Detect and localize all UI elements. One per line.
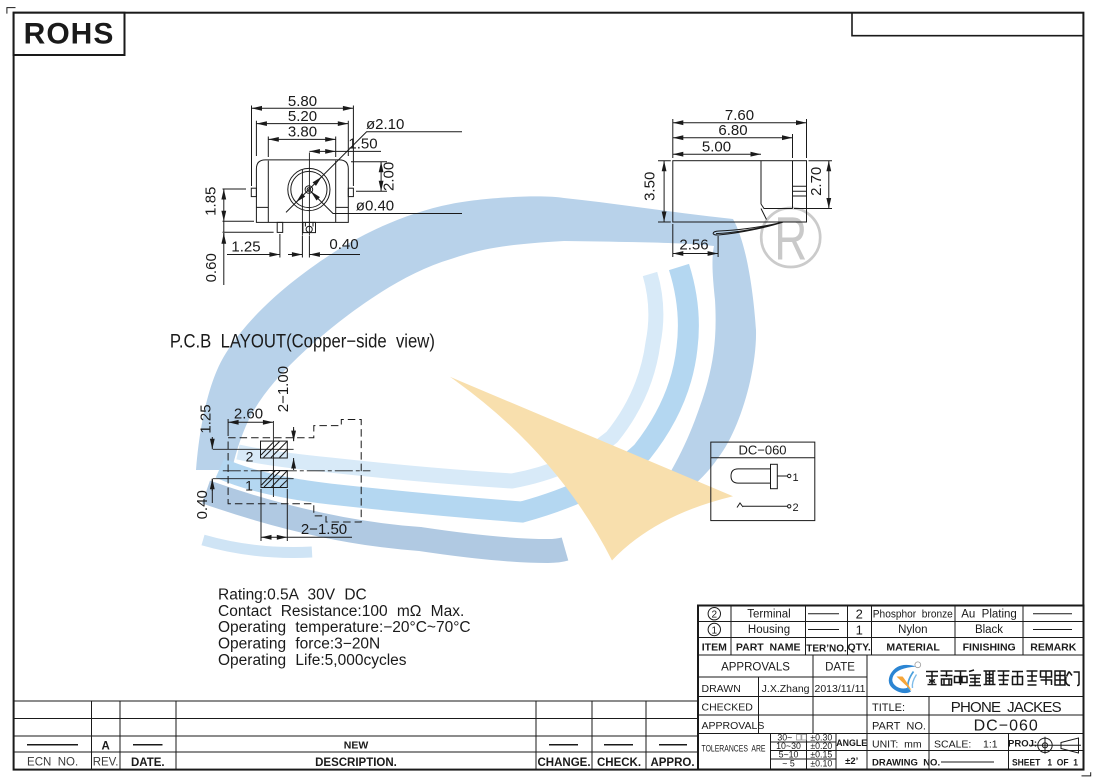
svg-text:Housing: Housing (748, 624, 790, 636)
svg-text:UNIT: mm: UNIT: mm (872, 738, 922, 750)
svg-text:DRAWING NO.: DRAWING NO. (872, 757, 940, 768)
svg-text:Contact Resistance:100 mΩ Max.: Contact Resistance:100 mΩ Max. (218, 603, 464, 620)
svg-text:PHONE JACKES: PHONE JACKES (951, 699, 1062, 716)
svg-text:REV.: REV. (93, 757, 119, 769)
svg-text:SCALE: 1:1: SCALE: 1:1 (934, 738, 998, 750)
svg-text:2: 2 (712, 610, 718, 621)
svg-text:APPROVALS: APPROVALS (702, 720, 765, 732)
svg-text:DC−060: DC−060 (974, 717, 1039, 734)
svg-text:0.40: 0.40 (329, 236, 358, 253)
svg-text:QTY.: QTY. (848, 642, 871, 654)
svg-text:APPROVALS: APPROVALS (721, 662, 790, 674)
svg-text:ø0.40: ø0.40 (356, 198, 394, 215)
svg-text:Black: Black (975, 624, 1003, 636)
svg-text:DATE.: DATE. (131, 757, 165, 769)
svg-text:2−1.50: 2−1.50 (301, 521, 347, 538)
svg-text:1.50: 1.50 (348, 135, 377, 152)
svg-text:1.25: 1.25 (231, 239, 260, 256)
svg-text:CHANGE.: CHANGE. (537, 757, 590, 769)
svg-text:PART NO.: PART NO. (872, 720, 926, 732)
svg-text:TER’NO.: TER’NO. (806, 644, 847, 655)
svg-text:2013/11/11: 2013/11/11 (815, 683, 866, 695)
svg-text:CHECKED: CHECKED (702, 702, 754, 714)
svg-text:Terminal: Terminal (747, 608, 790, 620)
svg-text:TITLE:: TITLE: (872, 702, 905, 714)
svg-text:Operating force:3−20N: Operating force:3−20N (218, 636, 380, 653)
svg-text:~ 5: ~ 5 (782, 758, 795, 768)
svg-text:6.80: 6.80 (718, 122, 747, 139)
svg-text:1.85: 1.85 (203, 187, 220, 216)
svg-text:J.X.Zhang: J.X.Zhang (762, 683, 810, 695)
svg-text:3.80: 3.80 (288, 124, 317, 141)
svg-text:REMARK: REMARK (1030, 642, 1076, 654)
svg-text:APPRO.: APPRO. (650, 757, 694, 769)
svg-text:5.20: 5.20 (288, 108, 317, 125)
svg-text:Au Plating: Au Plating (961, 608, 1017, 620)
svg-text:ITEM: ITEM (702, 642, 727, 654)
svg-text:2: 2 (793, 502, 799, 514)
svg-text:Nylon: Nylon (898, 624, 927, 636)
svg-text:1.25: 1.25 (198, 404, 215, 433)
svg-text:ECN NO.: ECN NO. (27, 757, 78, 769)
svg-text:Operating temperature:−20°C~70: Operating temperature:−20°C~70°C (218, 619, 471, 636)
svg-text:Phosphor bronze: Phosphor bronze (873, 608, 953, 620)
svg-text:2.00: 2.00 (381, 162, 398, 191)
svg-text:DRAWN: DRAWN (702, 683, 741, 695)
svg-text:Operating Life:5,000cycles: Operating Life:5,000cycles (218, 652, 407, 669)
svg-text:1: 1 (712, 626, 718, 637)
svg-text:R: R (774, 205, 807, 273)
svg-text:Rating:0.5A 30V DC: Rating:0.5A 30V DC (218, 587, 367, 604)
svg-text:2−1.00: 2−1.00 (275, 366, 292, 412)
svg-text:1: 1 (856, 622, 863, 637)
svg-text:ANGLE: ANGLE (836, 738, 867, 748)
svg-text:TOLERANCES ARE: TOLERANCES ARE (702, 744, 766, 754)
svg-text:2: 2 (246, 448, 254, 464)
svg-text:0.60: 0.60 (203, 253, 220, 282)
svg-text:P.C.B LAYOUT(Copper−side vie: P.C.B LAYOUT(Copper−side view) (170, 332, 435, 353)
svg-text:DC−060: DC−060 (738, 443, 786, 458)
svg-text:ø2.10: ø2.10 (366, 116, 404, 133)
svg-text:MATERIAL: MATERIAL (886, 642, 940, 654)
svg-text:DATE: DATE (825, 662, 855, 674)
svg-text:2.60: 2.60 (234, 406, 263, 423)
svg-text:A: A (101, 741, 109, 753)
svg-text:2.70: 2.70 (808, 167, 825, 196)
svg-text:2: 2 (856, 607, 863, 622)
svg-text:PART NAME: PART NAME (736, 642, 801, 654)
svg-text:ROHS: ROHS (24, 18, 115, 51)
svg-text:±2’: ±2’ (845, 756, 858, 767)
svg-text:0.40: 0.40 (194, 490, 211, 519)
svg-text:±0.10: ±0.10 (810, 758, 832, 768)
svg-text:SHEET 1 OF 1: SHEET 1 OF 1 (1012, 757, 1079, 768)
svg-text:FINISHING: FINISHING (963, 642, 1016, 654)
svg-text:1: 1 (245, 477, 253, 493)
svg-text:2.56: 2.56 (679, 237, 708, 254)
svg-text:DESCRIPTION.: DESCRIPTION. (315, 757, 397, 769)
svg-text:1: 1 (793, 472, 799, 484)
svg-text:CHECK.: CHECK. (597, 757, 641, 769)
svg-text:5.00: 5.00 (702, 138, 731, 155)
svg-text:NEW: NEW (344, 740, 369, 752)
svg-text:3.50: 3.50 (642, 172, 659, 201)
svg-text:PROJ:: PROJ: (1008, 739, 1037, 750)
